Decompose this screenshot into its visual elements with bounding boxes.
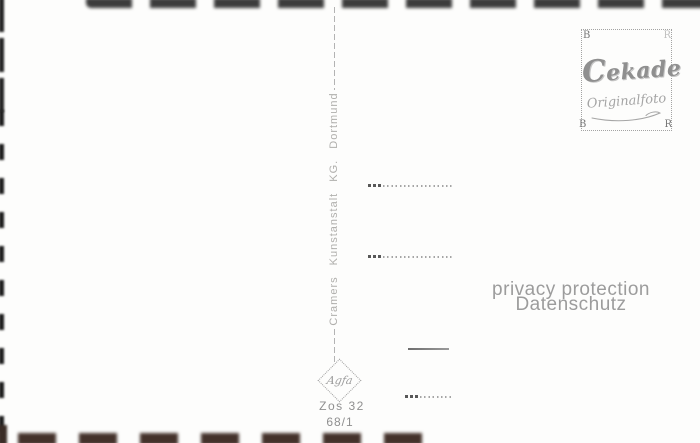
scan-artifact-bottom-left-corner xyxy=(0,425,7,443)
address-line-3-dots xyxy=(420,396,453,398)
address-line-2-head xyxy=(368,255,382,258)
stamp-corner-letter-top-right: R xyxy=(663,31,671,41)
address-line-1-head xyxy=(368,184,382,187)
address-line-3-head xyxy=(405,395,419,398)
scan-artifact-top-edge xyxy=(86,0,700,8)
script-flourish-underline xyxy=(588,109,666,123)
stamp-corner-letter-top-left: B xyxy=(583,31,590,41)
order-code: Zos 32 xyxy=(319,399,365,413)
scan-artifact-bottom-edge xyxy=(18,433,422,443)
address-line-2-dots xyxy=(383,256,452,258)
publisher-imprint: Cramers Kunstanstalt KG. Dortmund xyxy=(328,92,340,325)
divider-line-lower xyxy=(334,329,335,362)
cekade-logo-rest: ekade xyxy=(605,55,682,86)
cekade-logo-initial: C xyxy=(581,53,607,90)
address-line-1 xyxy=(368,184,452,187)
scan-artifact-left-edge-top xyxy=(0,0,4,112)
agfa-diamond-logo: Agfa xyxy=(318,359,362,403)
divider-line-upper xyxy=(334,7,335,90)
stamp-box: B R B R Cekade Originalfoto xyxy=(581,29,672,131)
address-line-3 xyxy=(405,395,453,398)
privacy-watermark: privacy protection Datenschutz xyxy=(480,282,662,312)
scan-artifact-left-edge xyxy=(0,110,4,443)
postcard-back-scan: Cramers Kunstanstalt KG. Dortmund Agfa Z… xyxy=(0,0,700,443)
stamp-corner-letter-bottom-left: B xyxy=(579,120,586,130)
address-line-solid xyxy=(408,348,449,350)
address-line-1-dots xyxy=(383,185,452,187)
series-code: 68/1 xyxy=(326,415,353,429)
cekade-logo: Cekade xyxy=(581,49,672,90)
agfa-logo-text: Agfa xyxy=(326,374,354,387)
address-line-2 xyxy=(368,255,452,258)
